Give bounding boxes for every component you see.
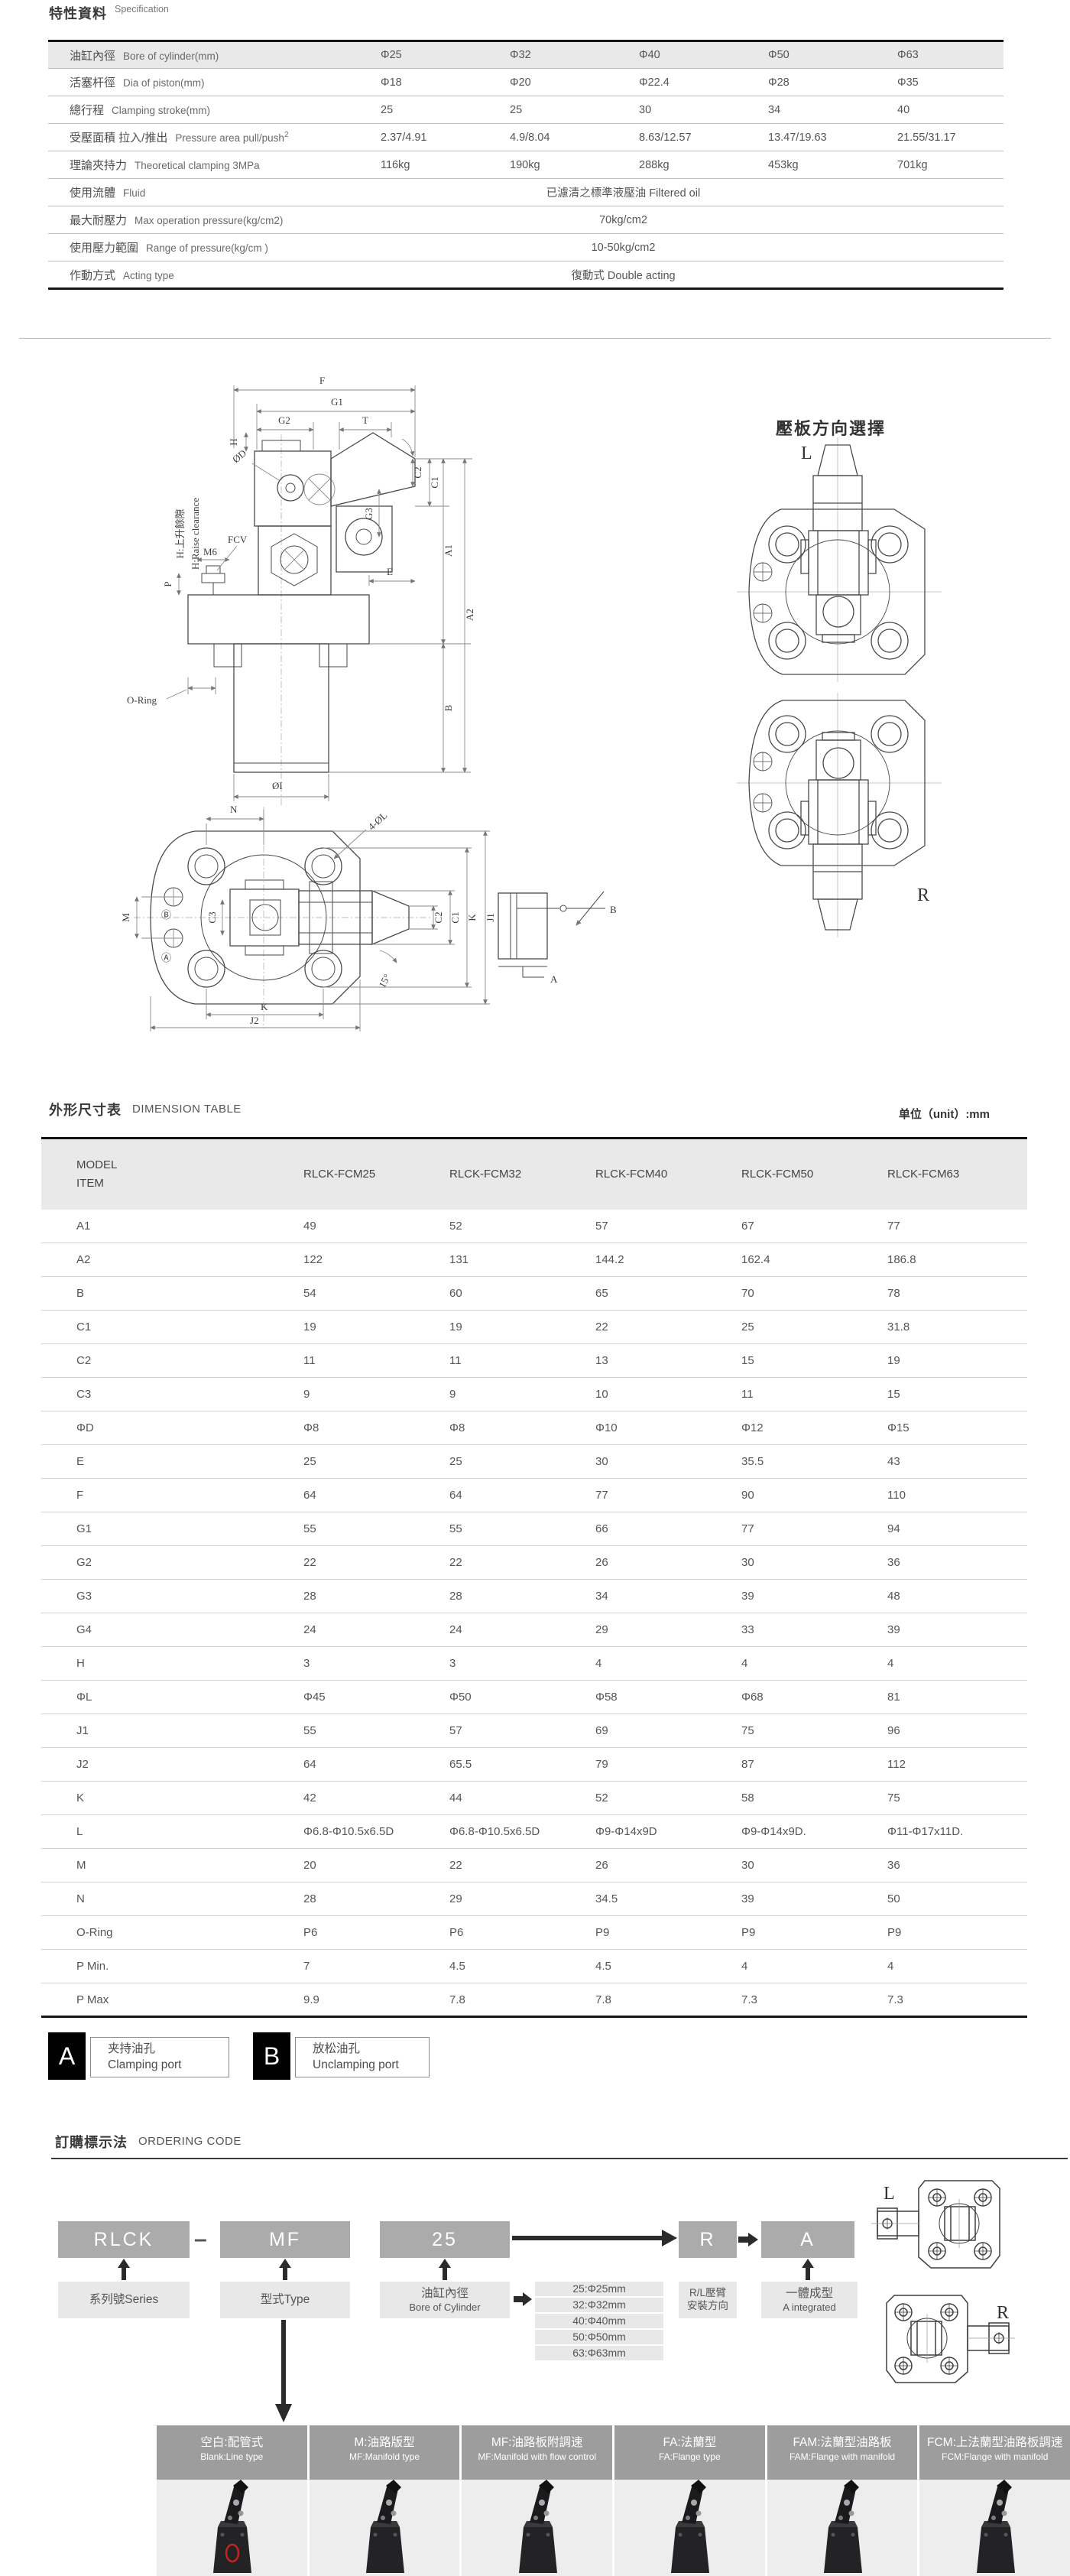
dimension-cell: 55 [297,1512,443,1546]
side-view-drawing: F G1 G2 T H H:上升餘隙 H:Raise clearance ØD [67,343,484,820]
dimension-cell: 50 [881,1882,1027,1916]
dimension-header-row: MODEL ITEM RLCK-FCM25 RLCK-FCM32 RLCK-FC… [41,1139,1027,1210]
dimension-cell: 29 [443,1882,589,1916]
segment-label-type: 型式Type [220,2282,350,2318]
clamp-product-photo [960,2480,1030,2573]
dim-label: G1 [331,396,343,408]
port-b-mark: Ⓑ [161,909,171,921]
dimension-cell: 131 [443,1243,589,1277]
arrow-right-icon [738,2233,758,2246]
dimension-cell: Φ15 [881,1411,1027,1445]
arrow-down-long-icon [275,2320,292,2422]
product-photo-cell [157,2480,307,2576]
segment-label-bore: 油缸內徑 Bore of Cylinder [380,2282,510,2318]
dimension-cell: 96 [881,1714,1027,1748]
dimension-cell: 49 [297,1210,443,1243]
dimension-cell: 43 [881,1445,1027,1479]
dimension-cell: 57 [589,1210,735,1243]
product-column: 空白:配管式Blank:Line type [157,2425,307,2576]
dimension-row: O-RingP6P6P9P9P9 [41,1916,1027,1950]
dimension-title-zh: 外形尺寸表 [49,1100,122,1119]
dimension-row: F64647790110 [41,1479,1027,1512]
plate-direction-right-drawing: R [725,690,954,944]
dim-label: FCV [228,534,248,545]
arrow-up-icon [279,2259,291,2280]
dimension-cell: 22 [297,1546,443,1580]
product-photo-cell [767,2480,918,2576]
ordering-left-arm-drawing: L [871,2176,1009,2276]
dimension-row: J26465.57987112 [41,1748,1027,1782]
spec-row: 理論夾持力Theoretical clamping 3MPa116kg190kg… [48,151,1004,179]
item-label: ITEM [41,1174,297,1193]
spec-value-cell: 453kg [745,151,874,179]
dimension-cell: P9 [589,1916,735,1950]
segment-label-line: Bore of Cylinder [409,2302,480,2314]
dimension-cell: 54 [297,1277,443,1311]
dimension-table: MODEL ITEM RLCK-FCM25 RLCK-FCM32 RLCK-FC… [41,1137,1027,2018]
dimension-row: J15557697596 [41,1714,1027,1748]
dim-label: M6 [203,546,218,557]
dimension-row: H33444 [41,1647,1027,1681]
dimension-row: G32828343948 [41,1580,1027,1613]
dimension-cell: Φ9-Φ14x9D. [735,1815,881,1849]
clamp-product-photo [502,2480,572,2573]
dimension-item: O-Ring [41,1916,297,1950]
dimension-row: K4244525875 [41,1782,1027,1815]
dimension-cell: 7.3 [881,1983,1027,2017]
product-photo-cell [462,2480,612,2576]
dimension-item: C1 [41,1311,297,1344]
code-dash: – [194,2227,207,2253]
dimension-cell: 13 [589,1344,735,1378]
product-header: 空白:配管式Blank:Line type [157,2425,307,2480]
dimension-cell: 22 [589,1311,735,1344]
dim-label: E [387,566,393,577]
dimension-cell: 52 [443,1210,589,1243]
product-name-en: FA:Flange type [614,2451,765,2464]
bore-option: 50:Φ50mm [535,2330,663,2344]
dim-label: G2 [278,414,290,426]
dimension-cell: 3 [443,1647,589,1681]
dim-label: G3 [363,508,374,520]
dimension-cell: 39 [735,1882,881,1916]
ordering-r-label: R [997,2303,1009,2323]
bore-option: 25:Φ25mm [535,2282,663,2296]
dimension-row: LΦ6.8-Φ10.5x6.5DΦ6.8-Φ10.5x6.5DΦ9-Φ14x9D… [41,1815,1027,1849]
dimension-item: M [41,1849,297,1882]
dimension-title-en: DIMENSION TABLE [132,1103,242,1116]
dim-label: C2 [433,911,444,923]
dimension-cell: 60 [443,1277,589,1311]
product-header: M:油路版型MF:Manifold type [310,2425,460,2480]
dimension-cell: P6 [297,1916,443,1950]
dimension-section-title: 外形尺寸表 DIMENSION TABLE [49,1100,242,1119]
spec-row: 受壓面積 拉入/推出Pressure area pull/push22.37/4… [48,124,1004,151]
dimension-cell: 15 [881,1378,1027,1411]
product-column: FCM:上法蘭型油路板調速FCM:Flange with manifold [919,2425,1070,2576]
dimension-cell: 30 [589,1445,735,1479]
dimension-cell: 52 [589,1782,735,1815]
product-name-zh: MF:油路板附調速 [462,2435,612,2451]
model-column-header: RLCK-FCM63 [881,1139,1027,1210]
dimension-cell: 24 [443,1613,589,1647]
dimension-cell: 110 [881,1479,1027,1512]
product-header: MF:油路板附調速MF:Manifold with flow control [462,2425,612,2480]
product-column: FAM:法蘭型油路板FAM:Flange with manifold [767,2425,918,2576]
dimension-cell: 4 [735,1950,881,1983]
dimension-cell: 15 [735,1344,881,1378]
product-photo-cell [614,2480,765,2576]
unit-note: 单位（unit）:mm [795,1106,990,1122]
dim-label: B [443,704,454,711]
dimension-cell: Φ9-Φ14x9D [589,1815,735,1849]
spec-row: 總行程Clamping stroke(mm)2525303440 [48,96,1004,124]
dimension-cell: 3 [297,1647,443,1681]
dimension-row: B5460657078 [41,1277,1027,1311]
dim-label: ØI [272,780,283,791]
dimension-cell: 11 [297,1344,443,1378]
port-a-description: 夹持油孔 Clamping port [90,2037,229,2077]
dimension-cell: 25 [297,1445,443,1479]
spec-value-cell: Φ22.4 [616,69,745,96]
dimension-cell: 64 [443,1479,589,1512]
segment-label-line: 系列號Series [89,2292,158,2307]
dimension-row: E25253035.543 [41,1445,1027,1479]
segment-label-line: A integrated [783,2302,835,2314]
bottom-view-drawing: Ⓑ Ⓐ 15° N 4-ØL M C3 K [80,799,508,1032]
raise-clearance-zh: H:上升餘隙 [174,508,186,558]
dimension-cell: 31.8 [881,1311,1027,1344]
spec-value-cell: 8.63/12.57 [616,124,745,151]
spec-row: 使用壓力範圍Range of pressure(kg/cm )10-50kg/c… [48,234,1004,261]
dimension-cell: 9 [297,1378,443,1411]
dimension-cell: 39 [881,1613,1027,1647]
dimension-cell: 11 [735,1378,881,1411]
spec-value-cell: 34 [745,96,874,124]
product-name-en: FAM:Flange with manifold [767,2451,918,2464]
segment-label-line: R/L壓臂 [689,2287,726,2300]
spec-value-cell: 4.9/8.04 [487,124,616,151]
dimension-cell: 87 [735,1748,881,1782]
dimension-row: C21111131519 [41,1344,1027,1378]
product-column: MF:油路板附調速MF:Manifold with flow control [462,2425,612,2576]
dimension-cell: P6 [443,1916,589,1950]
dimension-cell: 20 [297,1849,443,1882]
dimension-cell: 77 [589,1479,735,1512]
datasheet-page: 特性資料 Specification 油缸內徑Bore of cylinder(… [0,0,1070,2576]
dimension-cell: 7 [297,1950,443,1983]
dimension-cell: 26 [589,1849,735,1882]
dim-label: M [120,913,131,922]
arrow-up-icon [118,2259,130,2280]
ordering-section-title: 訂購標示法 ORDERING CODE [55,2132,242,2152]
dimension-item: C3 [41,1378,297,1411]
dimension-item: K [41,1782,297,1815]
spec-value-cell: Φ50 [745,41,874,69]
dimension-cell: 11 [443,1344,589,1378]
dimension-cell: Φ8 [443,1411,589,1445]
dimension-cell: 25 [735,1311,881,1344]
product-name-zh: FAM:法蘭型油路板 [767,2435,918,2451]
spec-value-cell: 2.37/4.91 [358,124,487,151]
arrow-up-icon [802,2259,814,2280]
port-a-zh: 夹持油孔 [108,2042,229,2058]
hydraulic-symbol: B A [489,885,627,992]
spec-row: 活塞杆徑Dia of piston(mm)Φ18Φ20Φ22.4Φ28Φ35 [48,69,1004,96]
dimension-cell: 4 [881,1647,1027,1681]
dimension-cell: 55 [297,1714,443,1748]
model-column-header: RLCK-FCM50 [735,1139,881,1210]
dimension-cell: 70 [735,1277,881,1311]
dimension-cell: Φ11-Φ17x11D. [881,1815,1027,1849]
spec-value-cell: Φ25 [358,41,487,69]
dim-label: ØD [230,447,248,466]
product-column: FA:法蘭型FA:Flange type [614,2425,765,2576]
dimension-row: M2022263036 [41,1849,1027,1882]
spec-row-label: 受壓面積 拉入/推出Pressure area pull/push2 [48,124,358,151]
code-segment-bore: 25 [380,2221,510,2258]
dimension-item: ΦL [41,1681,297,1714]
dim-label: A1 [443,544,454,557]
dimension-item: A2 [41,1243,297,1277]
product-header: FA:法蘭型FA:Flange type [614,2425,765,2480]
dim-label: T [362,414,368,426]
dimension-cell: Φ50 [443,1681,589,1714]
dimension-cell: 36 [881,1849,1027,1882]
dimension-cell: 144.2 [589,1243,735,1277]
dimension-cell: 10 [589,1378,735,1411]
port-a-label: A [550,973,558,985]
spec-row: 最大耐壓力Max operation pressure(kg/cm2)70kg/… [48,206,1004,234]
bore-option: 63:Φ63mm [535,2346,663,2360]
dimension-cell: 57 [443,1714,589,1748]
dimension-cell: 67 [735,1210,881,1243]
plate-direction-left-drawing: L [725,433,954,687]
dimension-cell: P9 [881,1916,1027,1950]
spec-value-cell: 190kg [487,151,616,179]
dim-label: N [230,804,238,815]
port-b-en: Unclamping port [313,2058,429,2074]
spec-value-cell: 13.47/19.63 [745,124,874,151]
spec-row-label: 總行程Clamping stroke(mm) [48,96,358,124]
dimension-cell: 4.5 [443,1950,589,1983]
product-name-zh: 空白:配管式 [157,2435,307,2451]
dimension-cell: 22 [443,1849,589,1882]
port-b-badge: B [253,2032,290,2080]
dimension-cell: 77 [881,1210,1027,1243]
product-header: FAM:法蘭型油路板FAM:Flange with manifold [767,2425,918,2480]
product-name-en: FCM:Flange with manifold [919,2451,1070,2464]
spec-value-cell: Φ18 [358,69,487,96]
model-column-header: RLCK-FCM32 [443,1139,589,1210]
segment-label-direction: R/L壓臂 安裝方向 [679,2282,737,2318]
dimension-cell: 25 [443,1445,589,1479]
dimension-item: J1 [41,1714,297,1748]
dim-label: A2 [464,609,475,621]
dimension-cell: 162.4 [735,1243,881,1277]
dim-label: P [162,581,173,586]
dimension-row: A2122131144.2162.4186.8 [41,1243,1027,1277]
segment-label-line: 一體成型 [786,2286,833,2301]
dimension-row: P Min.74.54.544 [41,1950,1027,1983]
code-segment-series: RLCK [58,2221,190,2258]
dimension-row: G22222263036 [41,1546,1027,1580]
specification-table: 油缸內徑Bore of cylinder(mm)Φ25Φ32Φ40Φ50Φ63活… [48,40,1004,290]
dimension-cell: 34 [589,1580,735,1613]
raise-clearance-en: H:Raise clearance [190,498,201,570]
dimension-row: G15555667794 [41,1512,1027,1546]
spec-value-cell: 25 [487,96,616,124]
dim-label: H [228,438,239,445]
dimension-item: A1 [41,1210,297,1243]
dimension-cell: 4 [589,1647,735,1681]
dimension-cell: 7.8 [443,1983,589,2017]
spec-title-zh: 特性資料 [49,3,107,23]
dim-label: C2 [412,466,423,478]
dimension-cell: Φ6.8-Φ10.5x6.5D [297,1815,443,1849]
model-item-header: MODEL ITEM [41,1139,297,1210]
spec-row: 使用流體Fluid已濾清之標準液壓油 Filtered oil [48,179,1004,206]
dim-label: C3 [206,911,218,923]
dimension-cell: 19 [297,1311,443,1344]
clamp-product-photo [349,2480,420,2573]
dimension-item: G3 [41,1580,297,1613]
dimension-item: G1 [41,1512,297,1546]
dimension-row: N282934.53950 [41,1882,1027,1916]
spec-value-cell: 25 [358,96,487,124]
dimension-cell: 28 [443,1580,589,1613]
dimension-item: L [41,1815,297,1849]
clamp-product-photo [196,2480,267,2573]
dimension-cell: 28 [297,1580,443,1613]
dimension-cell: 75 [735,1714,881,1748]
dimension-item: P Max [41,1983,297,2017]
dimension-cell: Φ6.8-Φ10.5x6.5D [443,1815,589,1849]
dimension-item: H [41,1647,297,1681]
dimension-cell: 79 [589,1748,735,1782]
spec-value-cell: 288kg [616,151,745,179]
dimension-cell: 122 [297,1243,443,1277]
arrow-right-long-icon [512,2230,677,2246]
dimension-row: A14952576777 [41,1210,1027,1243]
product-type-strip: 空白:配管式Blank:Line type M:油路版型MF:Manifold … [157,2425,1070,2576]
dimension-cell: 30 [735,1546,881,1580]
dimension-item: G4 [41,1613,297,1647]
segment-label-series: 系列號Series [58,2282,190,2318]
dimension-item: N [41,1882,297,1916]
dimension-cell: 34.5 [589,1882,735,1916]
dimension-row: ΦLΦ45Φ50Φ58Φ6881 [41,1681,1027,1714]
product-name-en: MF:Manifold type [310,2451,460,2464]
spec-row-label: 活塞杆徑Dia of piston(mm) [48,69,358,96]
spec-value-cell: 701kg [874,151,1004,179]
dimension-cell: 58 [735,1782,881,1815]
spec-row-label: 理論夾持力Theoretical clamping 3MPa [48,151,358,179]
dimension-cell: 19 [443,1311,589,1344]
dimension-cell: Φ58 [589,1681,735,1714]
product-name-zh: FA:法蘭型 [614,2435,765,2451]
dimension-cell: 26 [589,1546,735,1580]
model-label: MODEL [41,1156,297,1174]
dimension-cell: 33 [735,1613,881,1647]
dim-label: C1 [449,911,461,923]
dimension-row: G42424293339 [41,1613,1027,1647]
dimension-cell: 7.8 [589,1983,735,2017]
dimension-cell: 42 [297,1782,443,1815]
dimension-cell: 44 [443,1782,589,1815]
product-name-zh: FCM:上法蘭型油路板調速 [919,2435,1070,2451]
arrow-up-icon [439,2259,451,2280]
arrow-right-icon [514,2292,532,2306]
dimension-item: C2 [41,1344,297,1378]
port-a-en: Clamping port [108,2058,229,2074]
spec-row-label: 使用壓力範圍Range of pressure(kg/cm ) [48,234,358,261]
direction-l-label: L [801,443,812,463]
spec-value-cell: Φ40 [616,41,745,69]
dim-label: K [466,914,478,921]
dimension-cell: Φ10 [589,1411,735,1445]
dimension-cell: 4 [881,1950,1027,1983]
dim-label: J2 [250,1015,259,1026]
dimension-cell: 64 [297,1748,443,1782]
dimension-item: B [41,1277,297,1311]
ordering-right-arm-drawing: R [877,2291,1015,2390]
ordering-title-en: ORDERING CODE [138,2135,242,2148]
spec-row-label: 使用流體Fluid [48,179,358,206]
bore-option: 40:Φ40mm [535,2314,663,2328]
dimension-cell: 4.5 [589,1950,735,1983]
dimension-item: J2 [41,1748,297,1782]
spec-value-cell: Φ20 [487,69,616,96]
clamp-product-photo [807,2480,877,2573]
port-a-badge: A [48,2032,86,2080]
product-name-en: MF:Manifold with flow control [462,2451,612,2464]
code-segment-type: MF [220,2221,350,2258]
dimension-cell: 78 [881,1277,1027,1311]
dimension-cell: 4 [735,1647,881,1681]
spec-row: 作動方式Acting type復動式 Double acting [48,261,1004,289]
ordering-title-rule [51,2158,1068,2159]
dimension-cell: 24 [297,1613,443,1647]
dimension-item: G2 [41,1546,297,1580]
dimension-cell: 112 [881,1748,1027,1782]
spec-row-label: 油缸內徑Bore of cylinder(mm) [48,41,358,69]
dim-label: K [261,1001,268,1012]
section-divider [19,338,1051,339]
product-header: FCM:上法蘭型油路板調速FCM:Flange with manifold [919,2425,1070,2480]
code-segment-direction: R [679,2221,737,2258]
spec-value-cell: Φ63 [874,41,1004,69]
spec-row: 油缸內徑Bore of cylinder(mm)Φ25Φ32Φ40Φ50Φ63 [48,41,1004,69]
product-photo-cell [310,2480,460,2576]
port-b-label: B [610,904,617,915]
port-a-mark: Ⓐ [161,952,171,963]
dimension-cell: Φ68 [735,1681,881,1714]
ordering-title-zh: 訂購標示法 [55,2132,128,2152]
spec-value-cell: Φ35 [874,69,1004,96]
code-segment-integrated: A [761,2221,854,2258]
spec-title-en: Specification [115,4,169,15]
dimension-cell: 19 [881,1344,1027,1378]
dimension-cell: 186.8 [881,1243,1027,1277]
dimension-cell: 9 [443,1378,589,1411]
segment-label-line: 安裝方向 [687,2300,728,2313]
spec-value-cell: 21.55/31.17 [874,124,1004,151]
dimension-cell: 29 [589,1613,735,1647]
dimension-cell: Φ45 [297,1681,443,1714]
model-column-header: RLCK-FCM25 [297,1139,443,1210]
product-photo-cell [919,2480,1070,2576]
